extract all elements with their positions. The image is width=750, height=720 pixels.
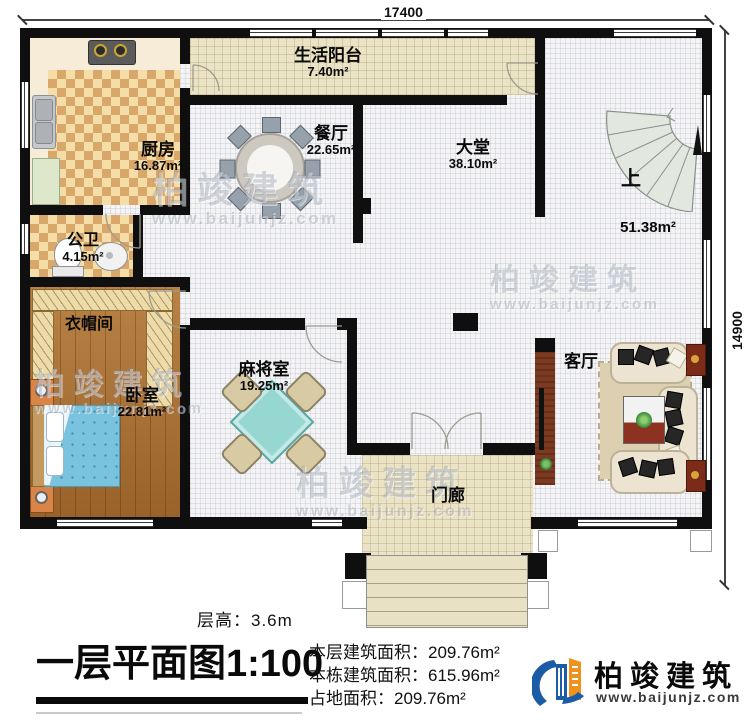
sofa-cushion <box>618 349 634 365</box>
entrance-door-left <box>412 413 448 449</box>
dimension-right: 14900 <box>729 309 745 352</box>
cutting-board-icon <box>32 158 60 205</box>
room-label-balcony: 生活阳台 7.40m² <box>263 46 393 80</box>
room-label-mahjong: 麻将室 19.25m² <box>222 360 306 394</box>
room-label-bedroom: 卧室 22.81m² <box>100 386 184 420</box>
entrance-door-right <box>445 413 481 449</box>
room-label-cloakroom: 衣帽间 <box>50 316 128 334</box>
side-table-dot <box>691 471 699 479</box>
sofa-cushion <box>665 391 684 410</box>
building-area-label: 本栋建筑面积：615.96m² <box>309 661 500 686</box>
stair-area-label: 51.38m² <box>606 220 690 237</box>
toilet-tank <box>52 266 84 277</box>
lamp-icon <box>35 491 48 504</box>
room-label-porch: 门廊 <box>412 486 484 505</box>
title-underline-thin <box>36 712 302 714</box>
floor-plan: 柏竣建筑 www.baijunjz.com 柏竣建筑 www.baijunjz.… <box>0 0 750 720</box>
sofa-cushion <box>665 409 684 428</box>
watermark-brand: 柏竣建筑 <box>490 264 646 297</box>
stair-up-label: 上 <box>615 168 647 190</box>
sink-basin <box>35 99 53 121</box>
floor-height-label: 层高：3.6m <box>197 606 293 631</box>
dimension-line-right <box>724 30 726 585</box>
watermark: 柏竣建筑 www.baijunjz.com <box>490 264 659 314</box>
sofa-cushion <box>639 460 658 479</box>
brand-logo-icon <box>532 652 588 710</box>
brand-website: www.baijunjz.com <box>596 689 741 705</box>
plant-icon <box>636 412 652 428</box>
staircase <box>598 107 713 212</box>
watermark: 柏竣建筑 www.baijunjz.com <box>152 170 339 228</box>
drawing-title: 一层平面图1:100 <box>36 632 323 687</box>
room-label-living: 客厅 <box>550 352 612 371</box>
burner-icon <box>94 44 107 57</box>
room-label-hall: 大堂 38.10m² <box>427 138 519 172</box>
dimension-line-top <box>22 19 710 21</box>
pillow-icon <box>46 446 64 476</box>
balcony-hall-door <box>507 63 538 94</box>
room-label-dining: 餐厅 22.65m² <box>285 124 377 158</box>
watermark-brand: 柏竣建筑 <box>152 169 332 210</box>
room-label-kitchen: 厨房 16.87m² <box>108 140 208 174</box>
room-label-bathroom: 公卫 4.15m² <box>46 232 120 264</box>
burner-icon <box>114 44 127 57</box>
watermark-site: www.baijunjz.com <box>490 297 659 314</box>
chair-icon <box>262 117 281 133</box>
title-underline <box>36 697 308 704</box>
kitchen-balcony-door <box>193 65 219 91</box>
mahjong-door <box>306 326 342 362</box>
cloakroom-door <box>149 291 186 328</box>
sofa-cushion <box>657 458 675 476</box>
stair-direction-arrow <box>693 125 702 155</box>
watermark-site: www.baijunjz.com <box>152 210 339 229</box>
watermark-site: www.baijunjz.com <box>296 503 474 521</box>
sink-basin <box>35 122 53 144</box>
dimension-top: 17400 <box>381 4 426 20</box>
land-area-label: 占地面积：209.76m² <box>309 684 466 709</box>
floor-area-label: 本层建筑面积：209.76m² <box>309 638 500 663</box>
side-table-dot <box>691 355 699 363</box>
